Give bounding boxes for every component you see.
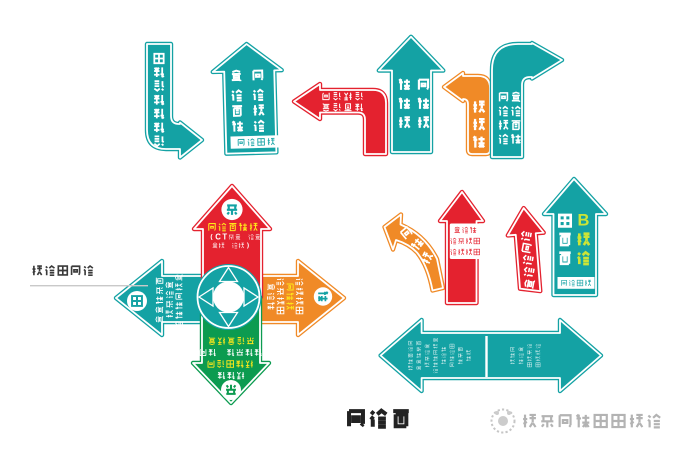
svg-text:B: B	[578, 212, 590, 230]
svg-text:): )	[247, 242, 249, 249]
svg-text:T: T	[222, 233, 227, 242]
svg-text:C: C	[215, 233, 221, 242]
